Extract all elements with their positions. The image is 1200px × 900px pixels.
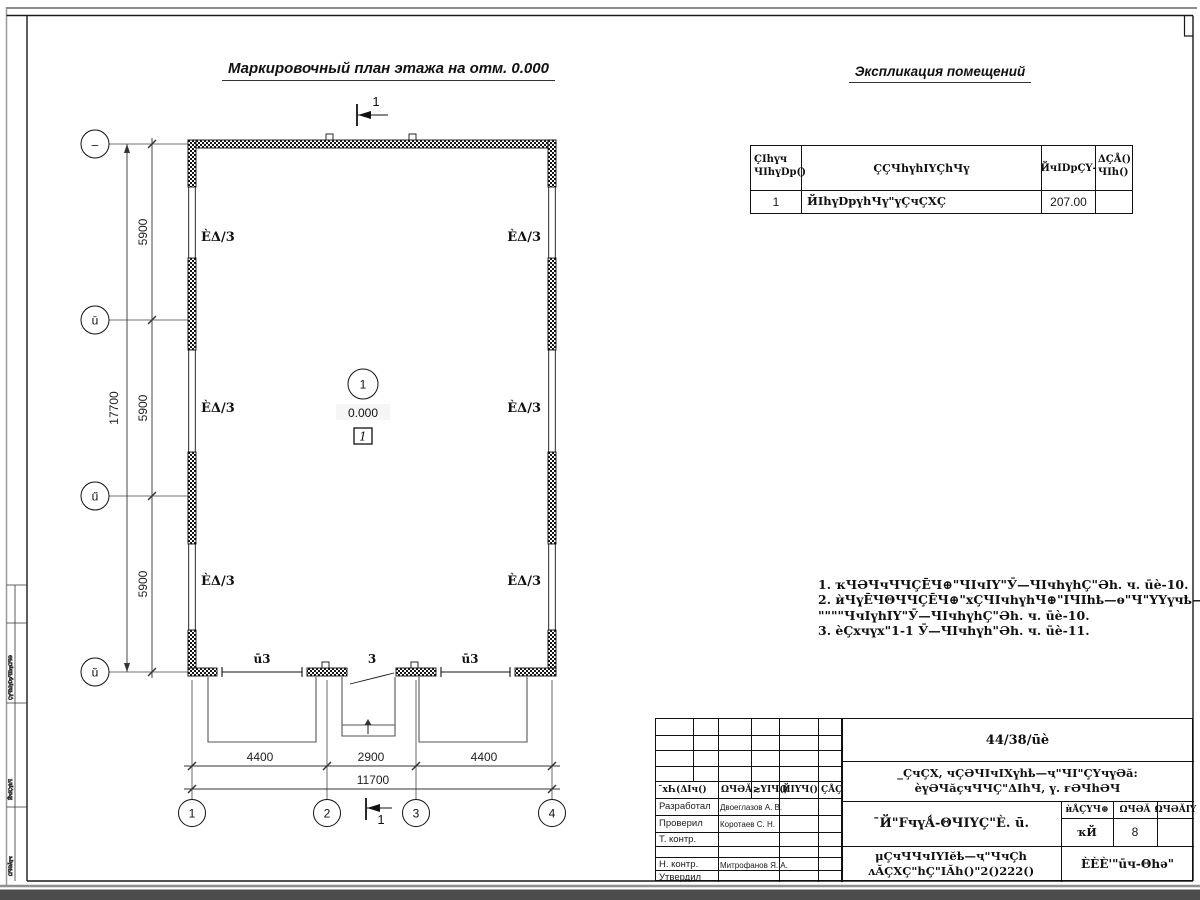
dim-4400-right: 4400 — [471, 750, 498, 764]
section-label-bottom: 1 — [377, 812, 384, 827]
level-mark: 0.000 — [348, 406, 378, 420]
room-number: 1 — [360, 378, 367, 392]
plan-title: Маркировочный план этажа на отм. 0.000 — [222, 60, 555, 81]
organization-name: ÈÈÈ'"ūч-Θһә" — [1061, 846, 1194, 882]
role-label-approved: Утвердил — [659, 872, 701, 883]
door-leaf — [350, 673, 394, 684]
role-label-developed: Разработал — [659, 801, 711, 812]
role-name-developed: Двоеглазов А. В. — [720, 803, 782, 812]
axis-row-1: – — [92, 138, 99, 152]
explication-title: Экспликация помещений — [849, 64, 1032, 83]
axis-lines — [109, 144, 552, 800]
note-line-1: 1. ҡЧӘЧчЧЧҪĒЧ⊕"ЧIчIҮ"Ӯ—ЧIчһүһҪ"Әһ. ч. ūè… — [818, 577, 1200, 592]
col-header-category: ΔҪÅ()ЧIһ() — [1095, 146, 1132, 191]
note-line-3: """"ЧчIүһIҮ"Ӯ—ЧIчһүһҪ"Әһ. ч. ūè-10. — [818, 608, 1200, 623]
plan-openings — [222, 667, 510, 684]
explication-table: ҪIһүчЧIһүDр() ҪҪЧһүһIҮҪһЧү ЙчIDрҪҮ- ΔҪÅ(… — [750, 145, 1133, 214]
door-mark-right: ū3 — [461, 652, 478, 666]
side-stamp: ҪүЧһIүDрЧIһүΩЧӘ ЙчIҪүһЧ ΩЧӘĂүч — [6, 585, 27, 881]
bottom-edge-bar — [0, 890, 1200, 900]
sheets-total — [1157, 818, 1194, 846]
dim-4400-left: 4400 — [247, 750, 274, 764]
stamp-header-list: ΩЧӘĂ — [721, 785, 752, 795]
axis-col-2: 2 — [324, 807, 331, 821]
section-label-top: 1 — [372, 94, 379, 109]
title-block: ¯хҺ(ΔIч() ΩЧӘĂ ≳ҮIЧ() ЙIҮЧ() ҪÅҪ Разрабо… — [655, 718, 1193, 881]
ramp-right — [419, 677, 527, 742]
sheet-title: ¯Й"FчүǺ-ΘЧIҮҪ"È. ū. — [841, 801, 1061, 846]
col-header-name: ҪҪЧһүһIҮҪһЧү — [801, 146, 1041, 191]
col-header-area: ЙчIDрҪҮ- — [1041, 146, 1095, 191]
corner-cell — [1185, 16, 1194, 37]
panel-mark-3: ÈΔ/3 — [201, 400, 235, 416]
notes-block: 1. ҡЧӘЧчЧЧҪĒЧ⊕"ЧIчIҮ"Ӯ—ЧIчһүһҪ"Әһ. ч. ūè… — [818, 577, 1200, 638]
axis-row-3: ű — [92, 490, 99, 504]
axis-col-4: 4 — [549, 807, 556, 821]
role-name-checked: Коротаев С. Н. — [720, 820, 775, 829]
stamp-header-izm: ¯хҺ(ΔIч() — [658, 785, 707, 795]
stamp-header-data: ҪÅҪ — [821, 785, 842, 795]
row-number: 1 — [751, 191, 801, 213]
note-line-4: 3. ѐҪхчүх"1-1 Ӯ—ЧIчһүһ"Әһ. ч. ūè-11. — [818, 623, 1200, 638]
side-stamp-text-1: ҪүЧһIүDрЧIһүΩЧӘ — [7, 655, 14, 700]
entry-arrow — [365, 719, 372, 725]
project-name: _ҪчҪХ, чҪӘЧIчIХүһҍ—ҷ"ЧI"ҪҮчүӘă: ѐүӘЧăҫчЧ… — [841, 761, 1194, 801]
sheet-number: 8 — [1113, 818, 1157, 846]
door-mark-mid: 3 — [368, 652, 376, 666]
role-label-tcontrol: Т. контр. — [659, 834, 696, 845]
panel-mark-1: ÈΔ/3 — [201, 229, 235, 245]
role-label-checked: Проверил — [659, 818, 703, 829]
door-mark-left: ū3 — [253, 652, 270, 666]
axis-row-2: ū — [92, 314, 99, 328]
panel-mark-2: ÈΔ/3 — [507, 229, 541, 245]
ramp-left — [208, 677, 316, 742]
dim-5900-1: 5900 — [136, 218, 150, 245]
drawing-sheet: { "titles": { "plan": "Маркировочный пла… — [0, 0, 1200, 900]
doc-number: 44/38/ūè — [841, 719, 1194, 761]
stamp-header-podp: ЙIҮЧ() — [782, 785, 818, 795]
dim-5900-2: 5900 — [136, 394, 150, 421]
axis-col-1: 1 — [189, 807, 196, 821]
stage-value: ҡЙ — [1061, 818, 1113, 846]
row-category — [1095, 191, 1132, 213]
dim-2900: 2900 — [358, 750, 385, 764]
stage-header-sheets: ΩЧӘĂIҮ — [1157, 801, 1194, 818]
stage-header-sheet: ΩЧӘĂ — [1113, 801, 1157, 818]
side-stamp-text-3: ΩЧӘĂүч — [7, 856, 14, 876]
role-name-ncontrol: Митрофанов Я. А. — [720, 861, 788, 870]
department-name: μҪчЧЧчIҮIĕҍ—ҷ"ЧчҪһ ʌĂҪХҪ"һҪ"IĂһ()"2()222… — [841, 846, 1061, 882]
col-header-number: ҪIһүчЧIһүDр() — [751, 146, 801, 191]
row-name: ЙIһүDрүһЧү"үҪчҪХҪ — [801, 191, 1041, 213]
axis-col-3: 3 — [413, 807, 420, 821]
note-line-2: 2. ѝЧүĒЧΘЧЧҪĒЧ⊕"хҪЧIчһүһЧ⊕"IЧIһҍ—ѳ"Ч"ҮҮү… — [818, 592, 1200, 607]
dim-5900-3: 5900 — [136, 570, 150, 597]
panel-mark-5: ÈΔ/3 — [201, 573, 235, 589]
plan-ramps — [208, 677, 527, 742]
row-area: 207.00 — [1041, 191, 1095, 213]
node-number: 1 — [359, 430, 367, 444]
panel-mark-6: ÈΔ/3 — [507, 573, 541, 589]
dim-17700: 17700 — [107, 391, 121, 425]
axis-row-4: ŭ — [92, 666, 99, 680]
panel-mark-4: ÈΔ/3 — [507, 400, 541, 416]
role-label-ncontrol: Н. контр. — [659, 859, 698, 870]
axis-bubbles-cols — [179, 800, 566, 827]
dim-11700: 11700 — [357, 773, 390, 787]
stage-header-stage: ѝÅҪҮЧ⊕ — [1061, 801, 1113, 818]
axis-bubbles-rows — [81, 130, 109, 686]
